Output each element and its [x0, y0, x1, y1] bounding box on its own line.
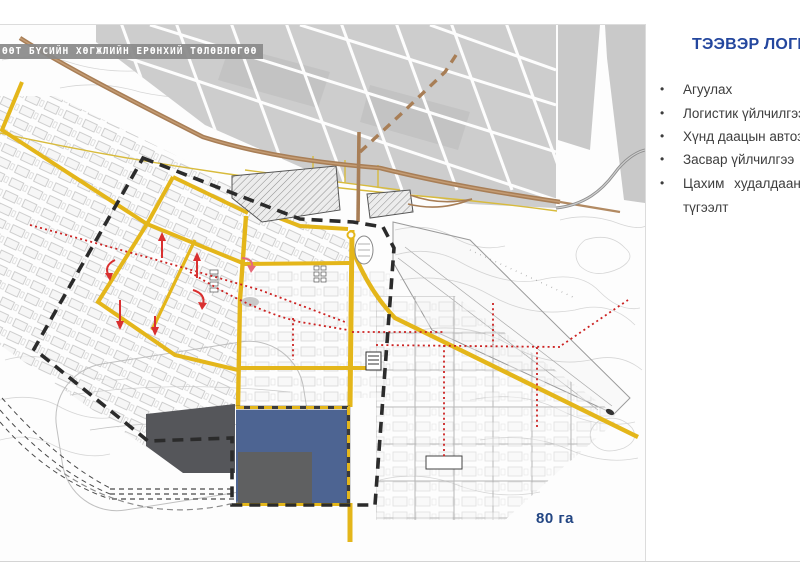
bullet-item-heavy-road: •Хүнд даацын автозам [660, 129, 800, 144]
map-overlay-label: ӨӨТ БҮСИЙН ХӨГЖЛИЙН ЕРӨНХИЙ ТӨЛӨВЛӨГӨӨ [0, 44, 263, 59]
bullet-icon: • [660, 82, 683, 96]
bullet-icon: • [660, 129, 683, 143]
bullet-item-repair: •Засвар үйлчилгээ [660, 152, 794, 167]
masterplan-map-svg [0, 25, 645, 562]
area-label: 80 га [536, 510, 574, 527]
map-border-right [645, 24, 646, 562]
map-border-top [0, 24, 645, 25]
station-barcode [366, 352, 381, 370]
bullet-icon: • [660, 152, 683, 166]
junction-roundabout [348, 232, 355, 239]
dark-parcel-inner [238, 452, 312, 505]
highlighted-building [426, 456, 462, 469]
bullet-icon: • [660, 106, 683, 120]
bullet-label: Агуулах [683, 82, 732, 97]
bullet-item-ecommerce-continuation: түгээлт [683, 200, 728, 215]
bullet-label: Хүнд даацын автозам [683, 129, 800, 144]
panel-title: ТЭЭВЭР ЛОГИСТИК [692, 36, 800, 54]
bullet-item-ecommerce: •Цахим худалдааны [660, 176, 800, 191]
slide-border-bottom [0, 561, 800, 562]
slide: { "overlay_label": "ӨӨТ БҮСИЙН ХӨГЖЛИЙН … [0, 0, 800, 570]
bullet-item-logistics: •Логистик үйлчилгээ [660, 106, 800, 121]
bullet-icon: • [660, 176, 683, 190]
masterplan-map [0, 25, 645, 562]
bullet-label: Логистик үйлчилгээ [683, 106, 800, 121]
bullet-label: Цахим худалдааны [683, 176, 800, 191]
bullet-label: Засвар үйлчилгээ [683, 152, 794, 167]
bullet-item-warehouse: •Агуулах [660, 82, 732, 97]
